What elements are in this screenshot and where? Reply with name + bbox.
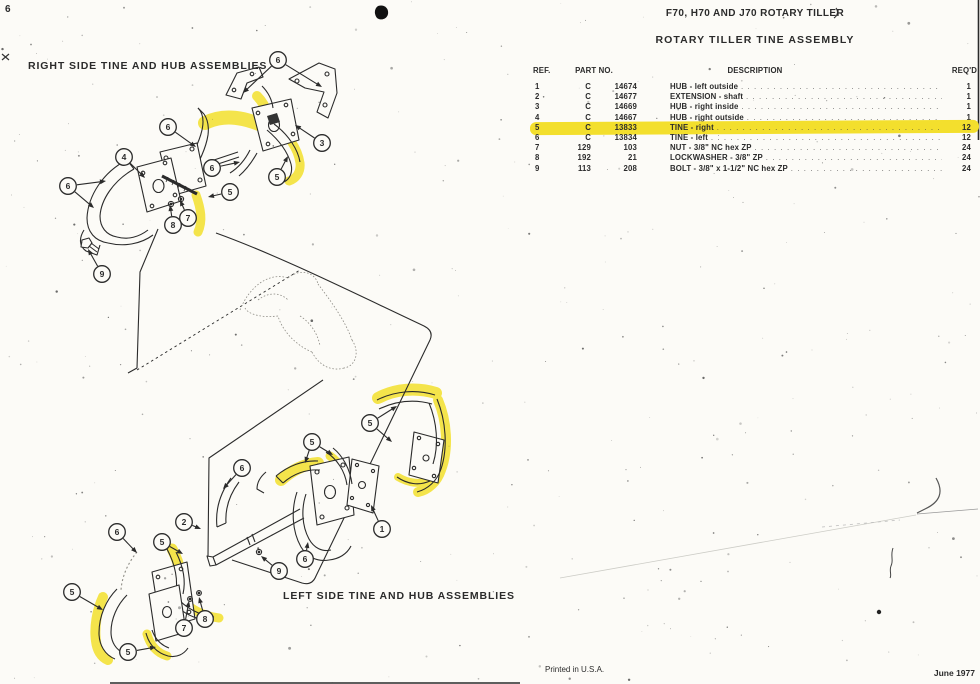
table-row: 819221LOCKWASHER - 3/8" ZP. . . . . . . … [533,153,977,163]
table-titles: F70, H70 AND J70 ROTARY TILLER ROTARY TI… [533,8,977,46]
callout-number: 6 [115,527,120,537]
callout-number: 5 [368,418,373,428]
callout-number: 7 [182,623,187,633]
header-ref: REF. [533,66,553,75]
callout-number: 2 [182,517,187,527]
callout-number: 3 [320,138,325,148]
callout-number: 1 [380,524,385,534]
callout-number: 5 [70,587,75,597]
callout-number: 6 [240,463,245,473]
parts-table: REF. PART NO. DESCRIPTION REQ'D 1C14674H… [533,66,977,174]
callout-number: 6 [210,163,215,173]
callout-number: 9 [277,566,282,576]
callout-number: 8 [203,614,208,624]
table-row: 1C14674HUB - left outside. . . . . . . .… [533,82,977,92]
parts-table-header: REF. PART NO. DESCRIPTION REQ'D [533,66,977,75]
table-row: 5C13833TINE - right. . . . . . . . . . .… [533,123,977,133]
table-row: 2C14677EXTENSION - shaft. . . . . . . . … [533,92,977,102]
callout-number: 6 [166,122,171,132]
callout-number: 9 [100,269,105,279]
header-reqd: REQ'D [945,66,977,75]
manual-page: 66463655789 5562169655785 6 RIGHT SIDE T… [0,0,980,684]
header-part: PART NO. [553,66,635,75]
table-row: 7129103NUT - 3/8" NC hex ZP. . . . . . .… [533,143,977,153]
table-row: 6C13834TINE - left. . . . . . . . . . . … [533,133,977,143]
document-title: F70, H70 AND J70 ROTARY TILLER [533,8,977,19]
callout-number: 5 [228,187,233,197]
issue-date: June 1977 [934,668,975,678]
callout-number: 5 [275,172,280,182]
callout-number: 7 [186,213,191,223]
right-side-diagram-label: RIGHT SIDE TINE AND HUB ASSEMBLIES [28,60,267,72]
page-number: 6 [5,4,11,15]
callout-number: 6 [66,181,71,191]
callout-number: 4 [122,152,127,162]
callout-number: 6 [303,554,308,564]
printed-in-note: Printed in U.S.A. [545,665,604,674]
parts-table-rows: 1C14674HUB - left outside. . . . . . . .… [533,82,977,174]
parts-table-title: ROTARY TILLER TINE ASSEMBLY [533,34,977,46]
callouts-bottom: 5562169655785 [64,406,397,660]
header-description: DESCRIPTION [635,66,945,75]
table-row: 9113208BOLT - 3/8" x 1-1/2" NC hex ZP. .… [533,164,977,174]
table-row: 3C14669HUB - right inside. . . . . . . .… [533,102,977,112]
callout-number: 5 [160,537,165,547]
callout-number: 5 [126,647,131,657]
callout-number: 6 [276,55,281,65]
callout-number: 8 [171,220,176,230]
callout-number: 5 [310,437,315,447]
left-side-diagram-label: LEFT SIDE TINE AND HUB ASSEMBLIES [283,590,515,602]
